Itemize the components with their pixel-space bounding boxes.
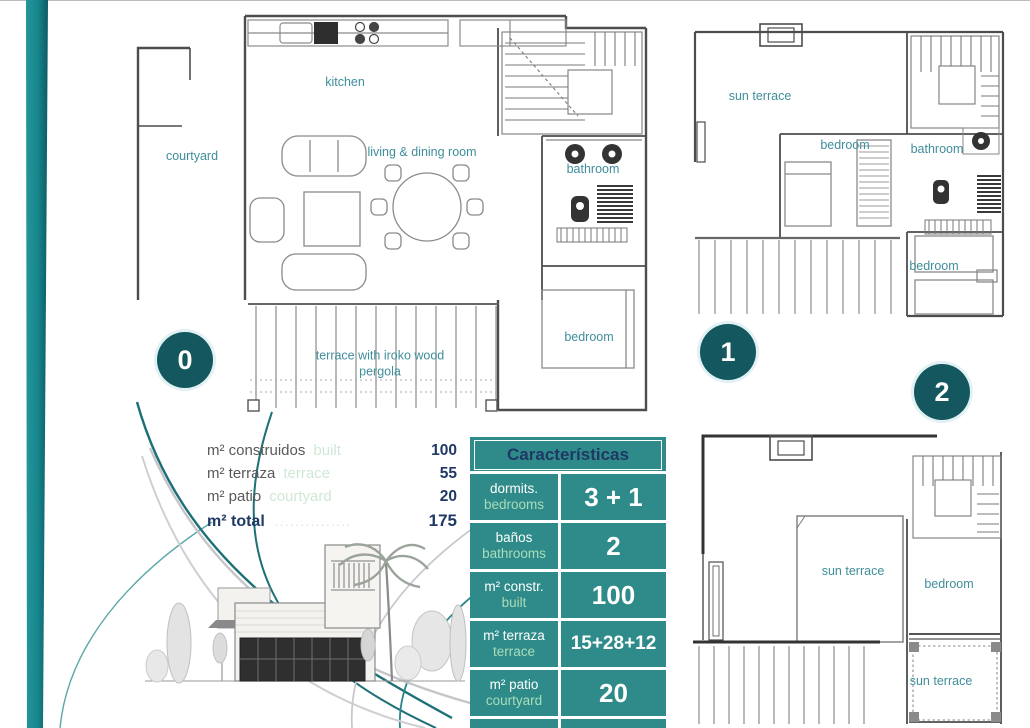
measure-value: 175 [429,511,457,531]
table-label-en: courtyard [486,693,542,709]
room-label-terrace: terrace with iroko wood pergola [314,348,446,379]
plan0-stairs [502,32,642,134]
table-label-en: terrace [493,644,535,660]
right-trees [395,605,466,681]
table-row-plot: m² parcela plot surface 455 [470,719,666,728]
room-label-sun-terrace-2-bottom: sun terrace [910,674,973,690]
room-label-living-dining: living & dining room [367,145,476,161]
floor-badge-2: 2 [914,364,970,420]
measure-label-en: terrace [283,465,330,482]
room-label-bathroom: bathroom [567,162,620,178]
plan1-stairs [911,36,999,128]
plan0-bathroom-fixtures [546,140,642,242]
table-row-label: m² patio courtyard [470,670,558,716]
room-label-sun-terrace-1: sun terrace [729,89,792,105]
measure-label-es: m² terraza [207,465,275,482]
table-row-label: dormits. bedrooms [470,474,558,520]
room-label-kitchen: kitchen [325,75,365,91]
table-label-en: bathrooms [482,546,546,562]
floor-badge-1: 1 [700,324,756,380]
measure-row-total: m² total ............... 175 [207,511,457,534]
measure-label-en: built [313,442,341,459]
measure-label-en: courtyard [269,488,332,505]
table-row-label: m² constr. built [470,572,558,618]
table-row-label: baños bathrooms [470,523,558,569]
measure-row-built: m² construidos built 100 [207,442,457,465]
plan2-stairs [913,456,1001,538]
measure-row-terrace: m² terraza terrace 55 [207,465,457,488]
house-body [208,545,380,681]
floor-badge-0: 0 [157,332,213,388]
page-top-border [0,0,1030,1]
table-label-es: dormits. [490,481,538,497]
measure-value: 100 [431,442,457,460]
room-label-bedroom-2: bedroom [924,577,973,593]
plan2-pergola [693,642,880,724]
table-label-es: baños [496,530,533,546]
table-label-en: bedrooms [484,497,544,513]
dotted-leader: ............... [275,514,352,529]
brochure-page: kitchen courtyard living & dining room b… [0,0,1030,728]
room-label-bedroom: bedroom [564,330,613,346]
table-row-label: m² terraza terrace [470,621,558,667]
house-elevation-sketch [140,533,470,698]
table-label-es: m² terraza [483,628,545,644]
room-label-sun-terrace-2-mid: sun terrace [822,564,885,580]
table-row-terrace: m² terraza terrace 15+28+12 [470,621,666,667]
measurements-block: m² construidos built 100 m² terraza terr… [207,442,457,534]
table-label-es: m² constr. [484,579,543,595]
measure-label-es: m² total [207,513,265,531]
measure-value: 20 [440,488,457,506]
table-row-value: 3 + 1 [561,474,666,520]
table-row-value: 455 [561,719,666,728]
teal-bar [26,0,48,728]
room-label-bedroom-1-mid: bedroom [820,138,869,154]
plan0-kitchen-counter [248,20,566,46]
table-row-value: 15+28+12 [561,621,666,667]
table-row-value: 2 [561,523,666,569]
floor-plan-1: sun terrace bedroom bathroom bedroom [685,14,1015,324]
table-row-bathrooms: baños bathrooms 2 [470,523,666,569]
plan1-bedroom-bottom-furniture [915,236,997,314]
table-label-en: built [502,595,527,611]
table-title: Características [474,440,662,470]
room-label-bathroom-1: bathroom [911,142,964,158]
caracteristicas-table: Características dormits. bedrooms 3 + 1 … [470,437,666,728]
table-row-label: m² parcela plot surface [470,719,558,728]
plan1-pergola [695,238,900,314]
table-label-es: m² patio [490,677,539,693]
table-header: Características [470,437,666,471]
floor-plan-2: sun terrace bedroom sun terrace [685,424,1015,728]
measure-label-es: m² patio [207,488,261,505]
table-row-value: 20 [561,670,666,716]
room-label-bedroom-1-bottom: bedroom [909,259,958,275]
measure-row-courtyard: m² patio courtyard 20 [207,488,457,511]
table-row-built: m² constr. built 100 [470,572,666,618]
floor-plan-1-drawing [685,14,1015,324]
plan2-outer-walls [703,436,937,554]
room-label-courtyard: courtyard [166,149,218,165]
measure-label-es: m² construidos [207,442,305,459]
plan0-bed [542,290,634,368]
left-trees [146,603,191,683]
table-row-value: 100 [561,572,666,618]
table-row-bedrooms: dormits. bedrooms 3 + 1 [470,474,666,520]
table-row-patio: m² patio courtyard 20 [470,670,666,716]
measure-value: 55 [440,465,457,483]
